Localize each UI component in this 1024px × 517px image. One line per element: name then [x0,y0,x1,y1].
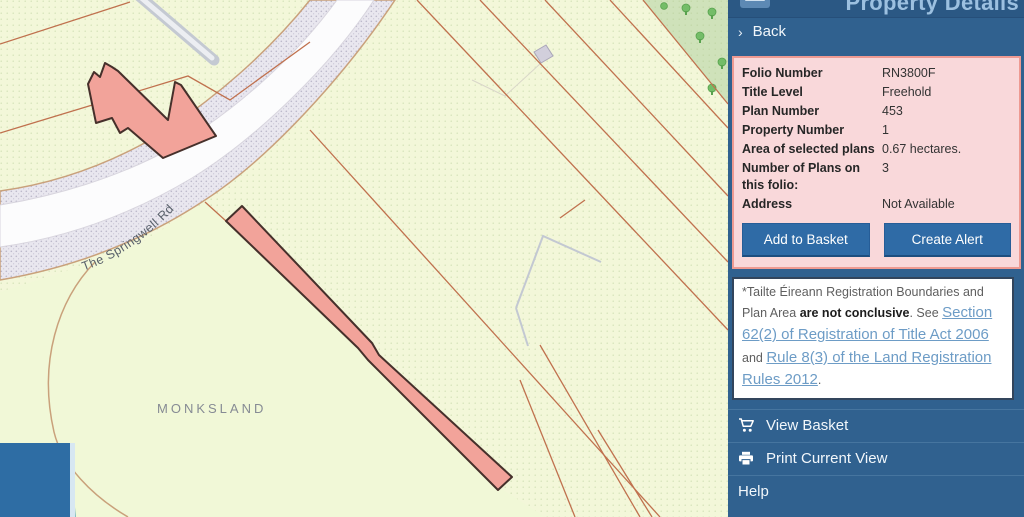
menu-icon[interactable] [740,0,770,8]
detail-row-property-number: Property Number 1 [742,121,1011,140]
view-basket-button[interactable]: View Basket [728,409,1024,442]
detail-row-plan-count: Number of Plans on this folio: 3 [742,159,1011,195]
sidebar-menu: View Basket Print Current View Help [728,409,1024,508]
property-details-panel: Folio Number RN3800F Title Level Freehol… [732,56,1021,269]
page-title: Property Details [845,0,1019,16]
back-label: Back [753,23,786,40]
property-registration-app: The Springwell Rd MONKSLAND Property Det… [0,0,1024,517]
create-alert-button[interactable]: Create Alert [884,223,1012,257]
boundaries-disclaimer: *Tailte Éireann Registration Boundaries … [732,277,1014,400]
cart-icon [738,418,758,433]
detail-row-folio: Folio Number RN3800F [742,64,1011,83]
sidebar-header: Property Details [728,0,1024,18]
detail-row-plan-number: Plan Number 453 [742,102,1011,121]
disclaimer-bold-text: are not conclusive [800,306,910,320]
townland-label: MONKSLAND [157,401,266,416]
add-to-basket-button[interactable]: Add to Basket [742,223,870,257]
detail-row-title-level: Title Level Freehold [742,83,1011,102]
chevron-right-icon: › [738,25,743,39]
detail-row-address: Address Not Available [742,195,1011,214]
map-canvas[interactable]: The Springwell Rd MONKSLAND [0,0,728,517]
detail-row-area: Area of selected plans 0.67 hectares. [742,140,1011,159]
printer-icon [738,451,758,466]
print-current-view-button[interactable]: Print Current View [728,442,1024,475]
back-button[interactable]: › Back [728,18,1024,45]
property-details-sidebar: Property Details › Back Folio Number RN3… [728,0,1024,517]
help-button[interactable]: Help [728,475,1024,508]
overview-map-square[interactable] [0,443,75,517]
rule-8-link[interactable]: Rule 8(3) of the Land Registration Rules… [742,349,991,389]
